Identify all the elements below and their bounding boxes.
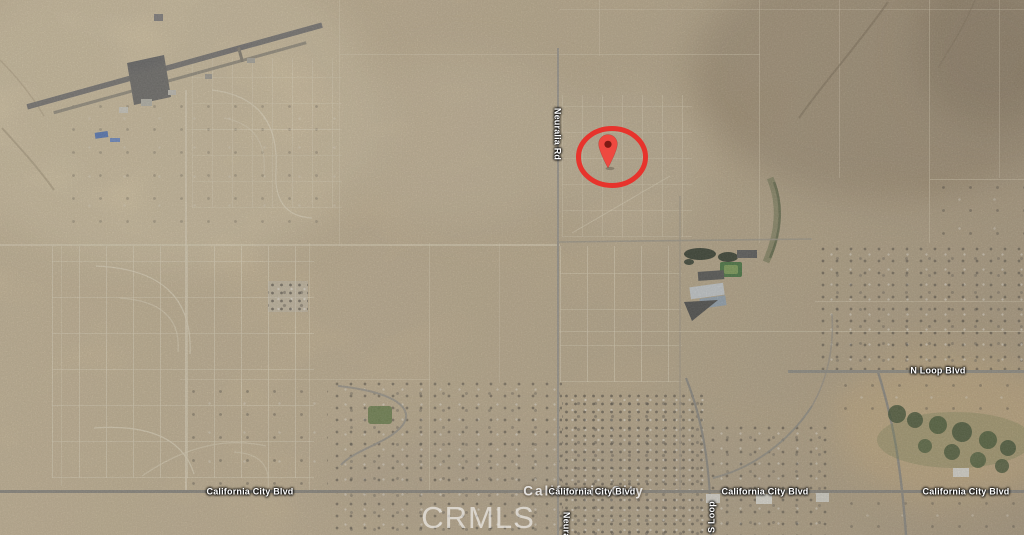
blue-structure bbox=[95, 131, 109, 139]
small-park bbox=[368, 406, 392, 424]
airport-building bbox=[141, 99, 152, 106]
commercial-building bbox=[816, 493, 829, 502]
property-location-marker[interactable] bbox=[558, 110, 670, 214]
location-pin-icon bbox=[599, 135, 618, 169]
pin-shadow bbox=[606, 167, 615, 170]
airport-runways bbox=[26, 22, 325, 120]
airport-runway bbox=[26, 22, 322, 109]
desert-wash bbox=[799, 2, 888, 118]
map-features-layer bbox=[0, 0, 1024, 535]
airport-building bbox=[154, 14, 163, 21]
road-label-california-city-blvd-far-east: California City Blvd bbox=[922, 488, 1009, 497]
airport-building bbox=[247, 58, 255, 63]
airport-building bbox=[119, 107, 128, 113]
desert-wash bbox=[0, 60, 44, 116]
airport-apron bbox=[127, 55, 171, 105]
airport-taxiway bbox=[53, 41, 306, 114]
road-label-neuralia-rd-south: Neuralia Rd bbox=[562, 512, 571, 535]
pond bbox=[684, 259, 694, 265]
road-label-s-loop: S Loop bbox=[708, 501, 717, 533]
sports-field-infield bbox=[724, 265, 738, 274]
road-label-n-loop-blvd: N Loop Blvd bbox=[910, 367, 965, 376]
airport-building bbox=[205, 74, 212, 79]
watermark-crmls: CRMLS bbox=[421, 500, 535, 535]
parking-lot bbox=[737, 250, 757, 258]
road-n-loop-blvd bbox=[788, 370, 1024, 373]
desert-wash bbox=[938, 0, 975, 68]
airport-building bbox=[168, 90, 176, 95]
location-pin-core-icon bbox=[604, 141, 611, 148]
blue-structure bbox=[110, 138, 120, 142]
road-label-california-city-blvd-center: California City Blvd bbox=[548, 488, 635, 497]
school-park-complex bbox=[684, 248, 757, 321]
road-label-california-city-blvd-east: California City Blvd bbox=[721, 488, 808, 497]
parking-lot bbox=[684, 300, 718, 321]
satellite-map-viewport[interactable]: California City CRMLS Neuralia Rd Neural… bbox=[0, 0, 1024, 535]
parking-lot bbox=[698, 270, 725, 281]
road-california-city-blvd bbox=[0, 490, 1024, 493]
commercial-building bbox=[953, 468, 969, 477]
road-label-california-city-blvd-west: California City Blvd bbox=[206, 488, 293, 497]
desert-wash bbox=[2, 128, 54, 190]
pond bbox=[718, 252, 738, 262]
pond bbox=[684, 248, 716, 260]
